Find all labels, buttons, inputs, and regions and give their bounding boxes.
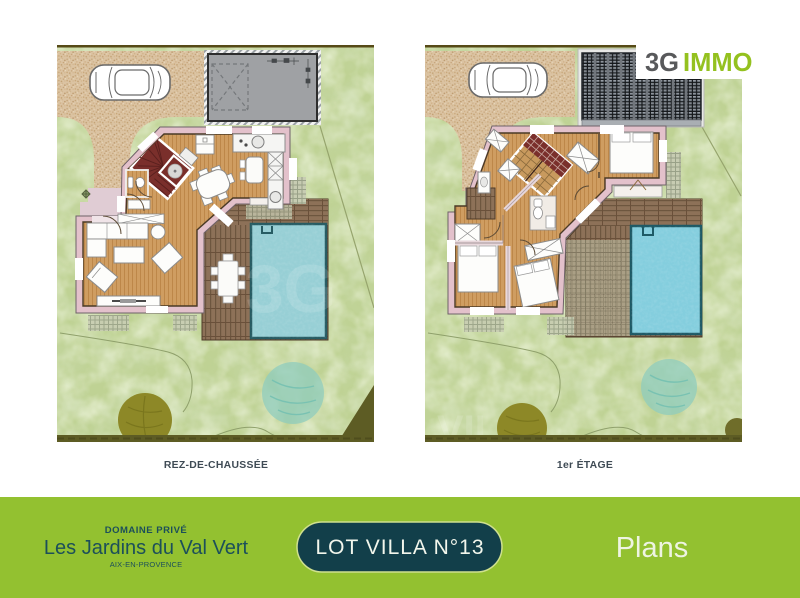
svg-text:REZ-DE-CHAUSSÉE: REZ-DE-CHAUSSÉE: [164, 458, 268, 471]
svg-text:Les Jardins du Val Vert: Les Jardins du Val Vert: [44, 537, 249, 559]
svg-text:1er ÉTAGE: 1er ÉTAGE: [557, 458, 613, 471]
svg-text:3G: 3G: [246, 251, 337, 327]
svg-text:LOT VILLA N°13: LOT VILLA N°13: [315, 536, 484, 559]
svg-text:IMMO: IMMO: [683, 49, 752, 77]
svg-text:DOMAINE PRIVÉ: DOMAINE PRIVÉ: [105, 525, 188, 536]
svg-text:AIX-EN-PROVENCE: AIX-EN-PROVENCE: [110, 560, 183, 569]
svg-text:3G: 3G: [645, 49, 679, 77]
svg-text:Plans: Plans: [616, 532, 689, 564]
